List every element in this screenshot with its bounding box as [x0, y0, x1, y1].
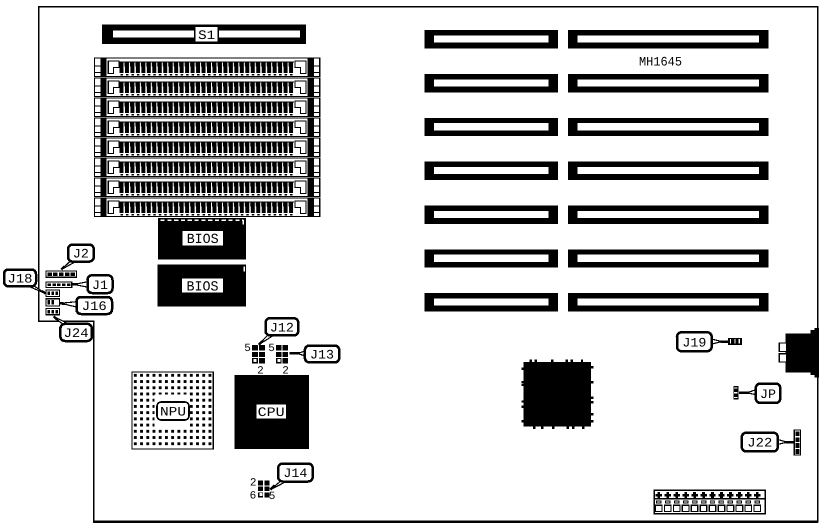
svg-text:J12: J12	[270, 320, 294, 335]
svg-text:S1: S1	[198, 28, 215, 43]
svg-text:NPU: NPU	[160, 405, 186, 420]
svg-text:6: 6	[250, 490, 257, 502]
svg-text:5: 5	[268, 343, 275, 355]
svg-text:MH1645: MH1645	[639, 55, 682, 70]
svg-text:J18: J18	[8, 272, 33, 287]
svg-text:J14: J14	[283, 466, 307, 481]
svg-text:JP: JP	[760, 387, 776, 402]
svg-text:2: 2	[250, 477, 257, 489]
svg-text:J22: J22	[747, 436, 772, 451]
svg-text:BIOS: BIOS	[187, 232, 219, 248]
svg-text:CPU: CPU	[258, 405, 285, 420]
svg-text:J13: J13	[310, 348, 334, 363]
svg-text:J24: J24	[64, 326, 89, 341]
svg-text:5: 5	[244, 343, 251, 355]
svg-text:BIOS: BIOS	[187, 279, 219, 295]
svg-text:J2: J2	[73, 247, 89, 262]
svg-text:5: 5	[269, 491, 276, 503]
svg-text:J19: J19	[682, 335, 706, 350]
svg-text:J1: J1	[92, 278, 108, 293]
svg-text:J16: J16	[82, 299, 107, 314]
